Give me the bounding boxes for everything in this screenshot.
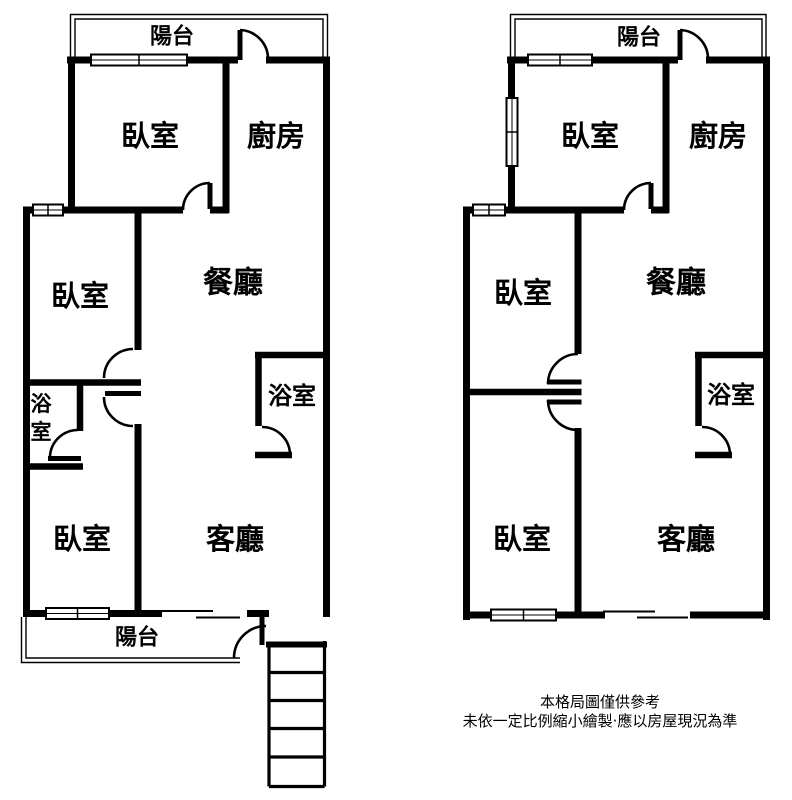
left-unit: 陽台 臥室 廚房 臥室 餐廳 浴 室 臥室 浴室 客廳 陽台 (22, 15, 331, 787)
disclaimer-line-2: 未依一定比例縮小繪製·應以房屋現況為準 (463, 712, 738, 730)
left-bathroom-small-label-char1: 浴 (31, 392, 53, 416)
floorplan-canvas: 陽台 臥室 廚房 臥室 餐廳 浴 室 臥室 浴室 客廳 陽台 (0, 0, 792, 800)
left-bathroom-right-label: 浴室 (268, 382, 316, 410)
right-bedroom-middle-label: 臥室 (494, 276, 552, 310)
left-dining-label: 餐廳 (203, 266, 263, 301)
left-bedroom-middle-label: 臥室 (51, 279, 109, 313)
right-window-side-vertical (507, 98, 518, 166)
left-balcony-top-outline (71, 15, 328, 61)
left-sliding-door-lines (160, 611, 240, 618)
disclaimer-note: 本格局圖僅供參考 未依一定比例縮小繪製·應以房屋現況為準 (463, 693, 738, 730)
stair-steps (269, 641, 325, 787)
left-window-top (91, 55, 187, 66)
right-balcony-top-label: 陽台 (617, 25, 661, 51)
left-kitchen-label: 廚房 (247, 119, 305, 153)
left-window-bottom (46, 608, 109, 619)
left-window-upper-left (33, 205, 63, 216)
left-living-label: 客廳 (206, 522, 264, 556)
right-sliding-door-lines (603, 612, 688, 618)
left-bedroom-top-label: 臥室 (121, 119, 179, 153)
floorplan-svg: 陽台 臥室 廚房 臥室 餐廳 浴 室 臥室 浴室 客廳 陽台 (0, 0, 792, 800)
left-balcony-top-label: 陽台 (150, 24, 194, 50)
left-staircase (266, 641, 327, 787)
disclaimer-line-1: 本格局圖僅供參考 (540, 693, 660, 711)
right-living-label: 客廳 (657, 522, 715, 556)
right-unit: 陽台 臥室 廚房 臥室 餐廳 臥室 浴室 客廳 (463, 15, 770, 621)
left-bathroom-small-label-char2: 室 (31, 420, 52, 444)
right-window-bottom (491, 610, 556, 621)
left-balcony-bottom-label: 陽台 (115, 625, 159, 651)
right-kitchen-label: 廚房 (689, 119, 747, 153)
right-bedroom-top-label: 臥室 (561, 119, 619, 153)
right-dining-label: 餐廳 (646, 266, 706, 301)
left-walls-medium (23, 355, 330, 467)
right-bathroom-label: 浴室 (707, 381, 755, 409)
right-window-upper-left (473, 205, 505, 216)
left-bedroom-bottom-label: 臥室 (53, 522, 111, 556)
right-bedroom-bottom-label: 臥室 (493, 522, 551, 556)
right-window-top (528, 55, 592, 66)
